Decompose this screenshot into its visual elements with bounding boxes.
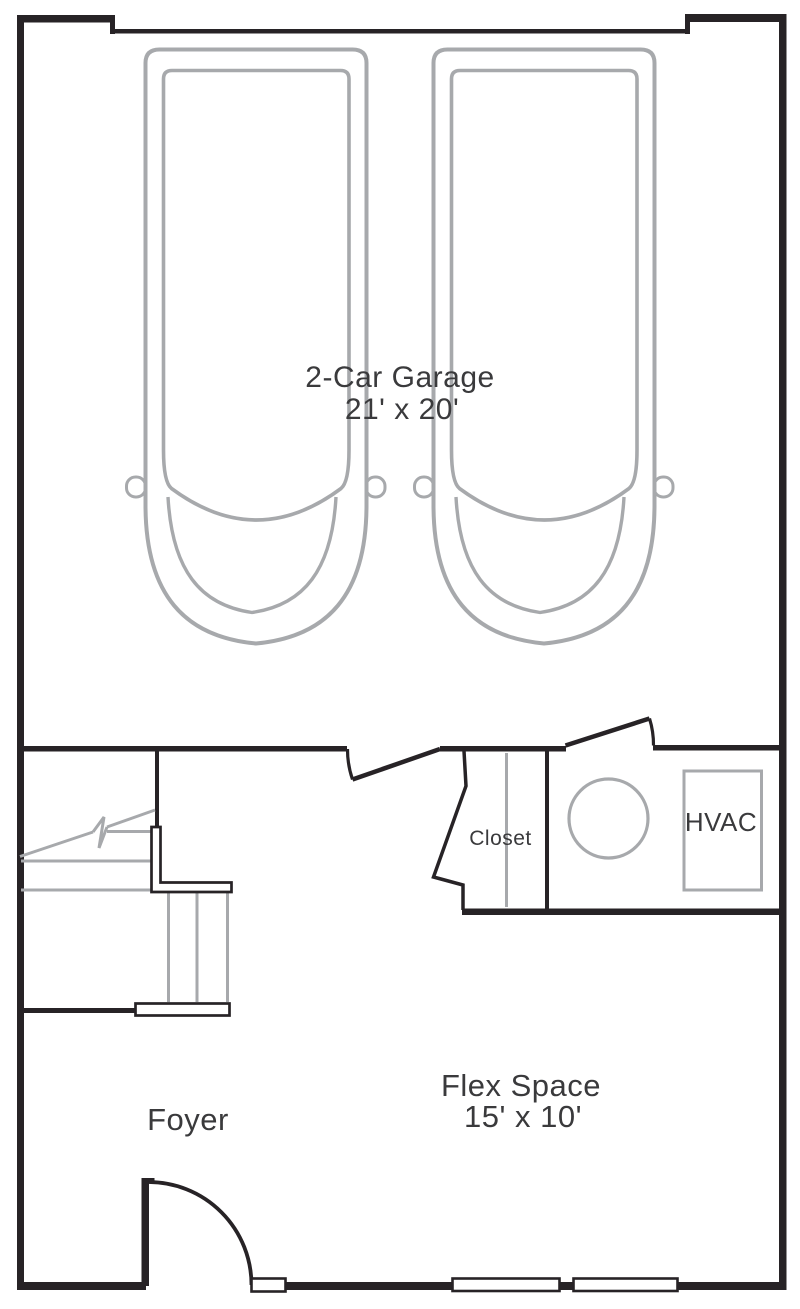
wall-bottom-2 <box>285 1282 453 1290</box>
window-sidelight <box>252 1279 286 1292</box>
wall-stair-hall <box>155 751 159 826</box>
flex-space-label: Flex Space <box>441 1068 601 1103</box>
wall-closet-right <box>545 751 549 912</box>
floor-plan-drawing: 2-Car Garage 21' x 20' Closet HVAC Foyer… <box>0 0 800 1309</box>
door-leaf-icon <box>566 719 650 746</box>
wall-left <box>17 15 24 1290</box>
staircase <box>20 810 232 1016</box>
wall-top-garage-door <box>112 29 688 34</box>
wall-top-left <box>17 15 115 23</box>
garage-entry-door-right <box>566 719 654 746</box>
foyer-label: Foyer <box>147 1102 229 1137</box>
door-leaf-icon <box>142 1180 150 1286</box>
door-swing-arc-icon <box>149 1182 252 1285</box>
wall-bottom-1 <box>17 1282 146 1290</box>
water-heater-icon <box>569 779 648 858</box>
wall-right <box>779 14 787 1290</box>
flex-space-dimensions: 15' x 10' <box>464 1099 582 1134</box>
window-flex-2 <box>574 1279 678 1292</box>
interior-walls <box>17 745 786 1013</box>
wall-garage-divider-left <box>17 746 347 752</box>
wall-bottom-4 <box>677 1282 784 1290</box>
stair-stringer-line <box>107 810 155 827</box>
car-icon <box>127 50 386 644</box>
door-swing-arc-icon <box>650 719 654 746</box>
closet-label: Closet <box>469 827 532 850</box>
floor-plan: 2-Car Garage 21' x 20' Closet HVAC Foyer… <box>0 0 800 1309</box>
car-icon <box>415 50 674 644</box>
wall-top-right <box>685 14 786 22</box>
stair-handrail-bottom <box>136 1004 230 1016</box>
stair-break-line <box>93 817 107 848</box>
wall-foyer-stub <box>17 1008 136 1013</box>
front-door <box>142 1178 252 1286</box>
door-leaf-icon <box>353 749 441 780</box>
garage-cars <box>127 50 674 644</box>
wall-bottom-3 <box>559 1282 574 1290</box>
garage-label: 2-Car Garage <box>305 361 494 394</box>
wall-utility-bottom <box>462 909 786 916</box>
stair-stringer-line <box>20 832 93 857</box>
door-swing-arc-icon <box>347 749 352 780</box>
garage-dimensions: 21' x 20' <box>345 393 459 426</box>
wall-closet-left-angled <box>434 751 467 910</box>
wall-garage-divider-mid <box>440 746 566 752</box>
stair-handrail <box>152 827 232 892</box>
garage-entry-door-left <box>347 749 440 780</box>
wall-garage-divider-right <box>653 745 786 751</box>
exterior-walls <box>17 14 787 1290</box>
hvac-label: HVAC <box>685 807 757 837</box>
window-flex-1 <box>453 1279 560 1292</box>
